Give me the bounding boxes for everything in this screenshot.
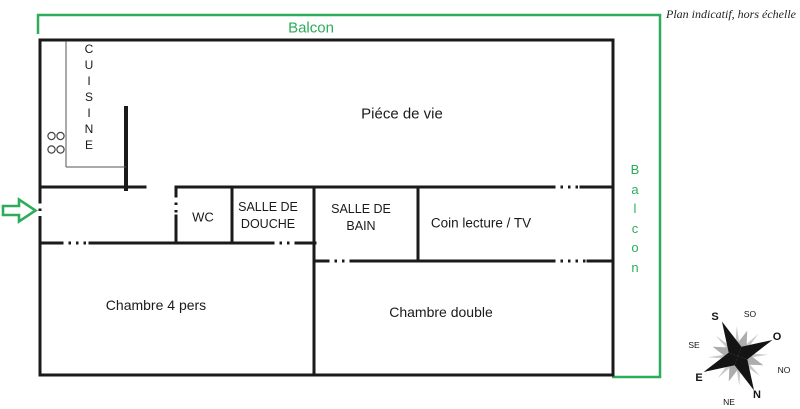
compass-label-e: E xyxy=(695,372,702,384)
walls xyxy=(40,40,613,375)
compass-label-no: NO xyxy=(778,365,791,375)
room-label-shower-line1: SALLE DE xyxy=(238,199,298,216)
room-label-bedroom-family: Chambre 4 pers xyxy=(106,297,206,313)
compass-label-o: O xyxy=(773,331,782,343)
room-label-bath-line2: BAIN xyxy=(331,218,391,235)
room-label-bedroom-double: Chambre double xyxy=(389,304,493,320)
room-label-kitchen: C U I S I N E xyxy=(85,41,94,153)
compass-label-so: SO xyxy=(744,309,757,319)
entrance-arrow-icon xyxy=(3,200,36,222)
room-label-shower: SALLE DE DOUCHE xyxy=(238,199,298,233)
compass-rose-icon: S O N E SO NO NE SE xyxy=(688,306,791,407)
stove-burners-icon xyxy=(48,132,64,153)
compass-label-ne: NE xyxy=(723,397,735,407)
compass-label-s: S xyxy=(711,311,718,323)
room-label-shower-line2: DOUCHE xyxy=(238,216,298,233)
compass-label-se: SE xyxy=(688,340,700,350)
floor-plan-drawing: S O N E SO NO NE SE xyxy=(0,0,800,409)
balcony-top-label: Balcon xyxy=(288,20,334,37)
room-label-reading: Coin lecture / TV xyxy=(431,216,531,231)
room-label-wc: WC xyxy=(192,210,214,225)
compass-label-n: N xyxy=(753,389,761,401)
balcony-outline xyxy=(38,15,660,377)
kitchen-counter-lines xyxy=(66,41,126,167)
room-label-bath-line1: SALLE DE xyxy=(331,201,391,218)
floor-plan: S O N E SO NO NE SE Plan indicatif, hors… xyxy=(0,0,800,409)
plan-note: Plan indicatif, hors échelle xyxy=(666,7,796,22)
room-label-living: Piéce de vie xyxy=(361,106,443,123)
room-label-bath: SALLE DE BAIN xyxy=(331,201,391,235)
balcony-right-label: B a l c o n xyxy=(631,160,640,278)
